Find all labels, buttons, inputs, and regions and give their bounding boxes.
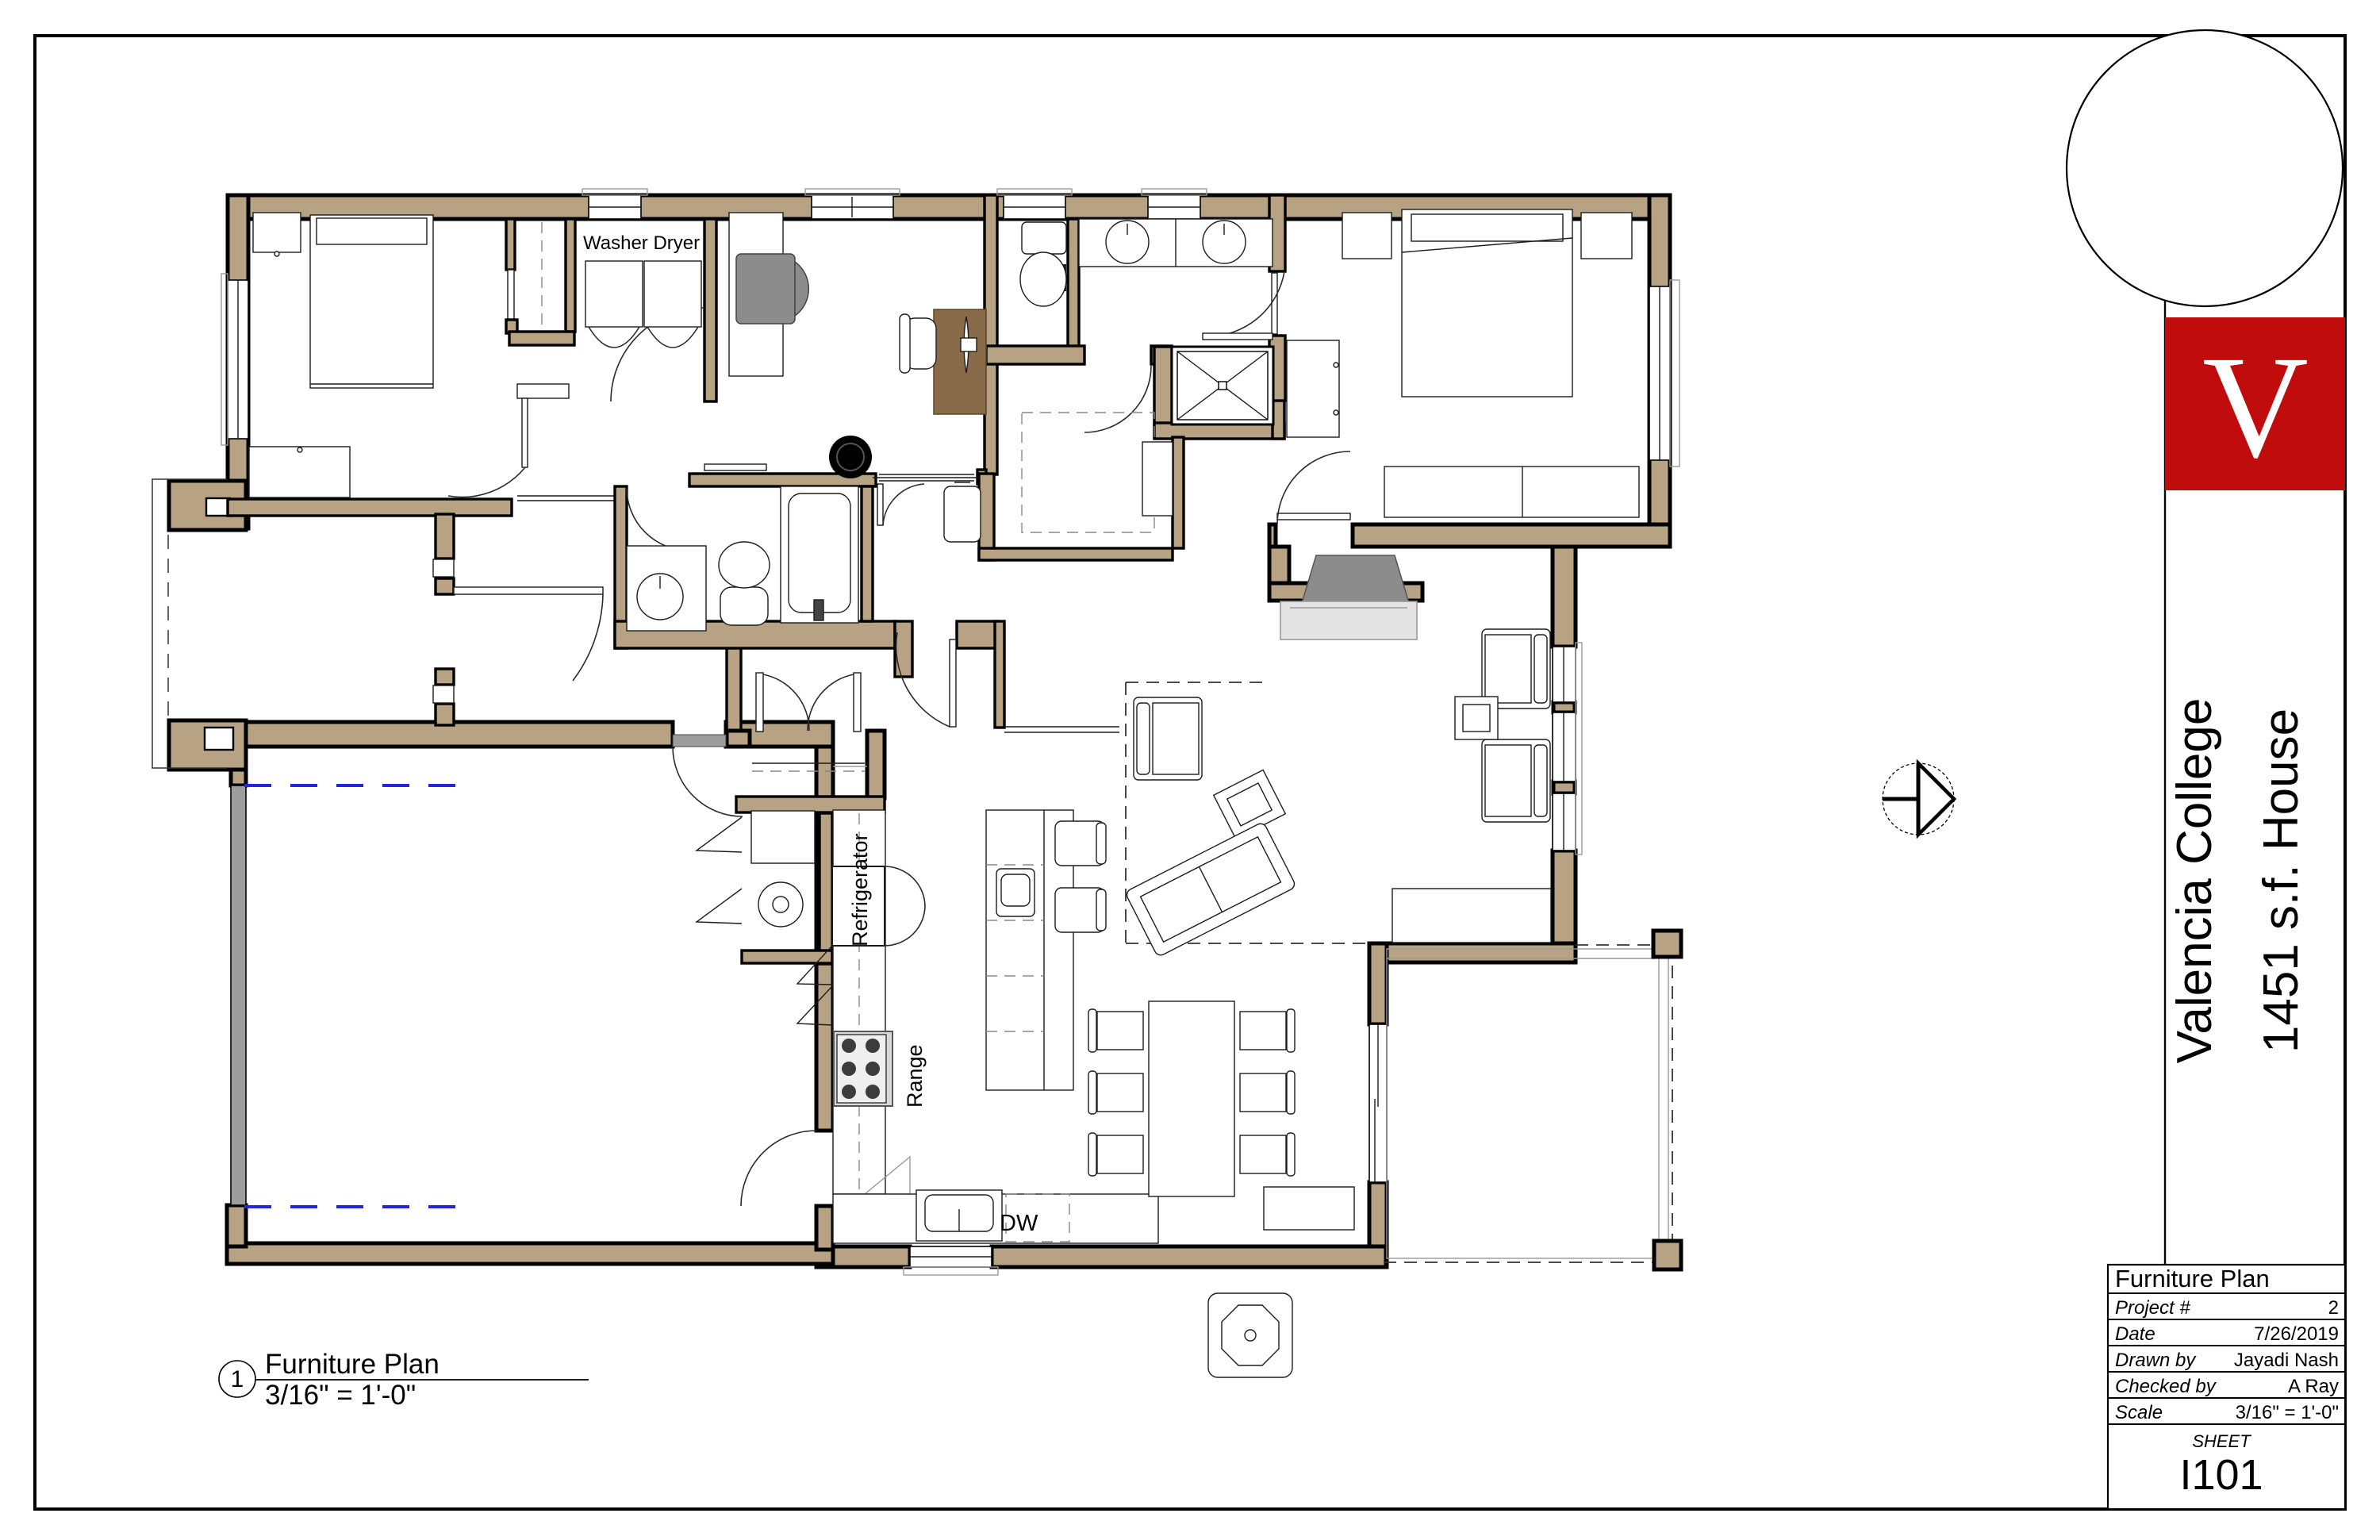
svg-text:Jayadi Nash: Jayadi Nash [2234, 1350, 2339, 1371]
svg-text:DW: DW [1000, 1211, 1038, 1236]
svg-text:SHEET: SHEET [2192, 1431, 2251, 1451]
svg-text:1451 s.f. House: 1451 s.f. House [2254, 709, 2309, 1053]
svg-text:1: 1 [231, 1366, 244, 1392]
svg-text:Washer Dryer: Washer Dryer [583, 232, 700, 254]
svg-text:3/16" = 1'-0": 3/16" = 1'-0" [2236, 1402, 2339, 1423]
svg-text:Date: Date [2115, 1323, 2155, 1345]
svg-text:Furniture Plan: Furniture Plan [265, 1349, 440, 1380]
svg-text:Refrigerator: Refrigerator [848, 833, 872, 947]
svg-text:Scale: Scale [2115, 1402, 2163, 1423]
svg-text:3/16" = 1'-0": 3/16" = 1'-0" [265, 1380, 416, 1411]
svg-text:7/26/2019: 7/26/2019 [2254, 1323, 2339, 1345]
svg-text:Furniture Plan: Furniture Plan [2115, 1265, 2270, 1292]
svg-text:2: 2 [2328, 1297, 2339, 1319]
svg-text:I101: I101 [2179, 1451, 2263, 1499]
svg-text:Checked by: Checked by [2115, 1376, 2217, 1397]
svg-text:Project #: Project # [2115, 1297, 2190, 1319]
svg-text:A Ray: A Ray [2288, 1376, 2339, 1397]
svg-text:Range: Range [903, 1044, 927, 1108]
svg-text:Drawn by: Drawn by [2115, 1350, 2197, 1371]
svg-text:Valencia College: Valencia College [2167, 698, 2222, 1064]
svg-text:V: V [2202, 326, 2309, 489]
